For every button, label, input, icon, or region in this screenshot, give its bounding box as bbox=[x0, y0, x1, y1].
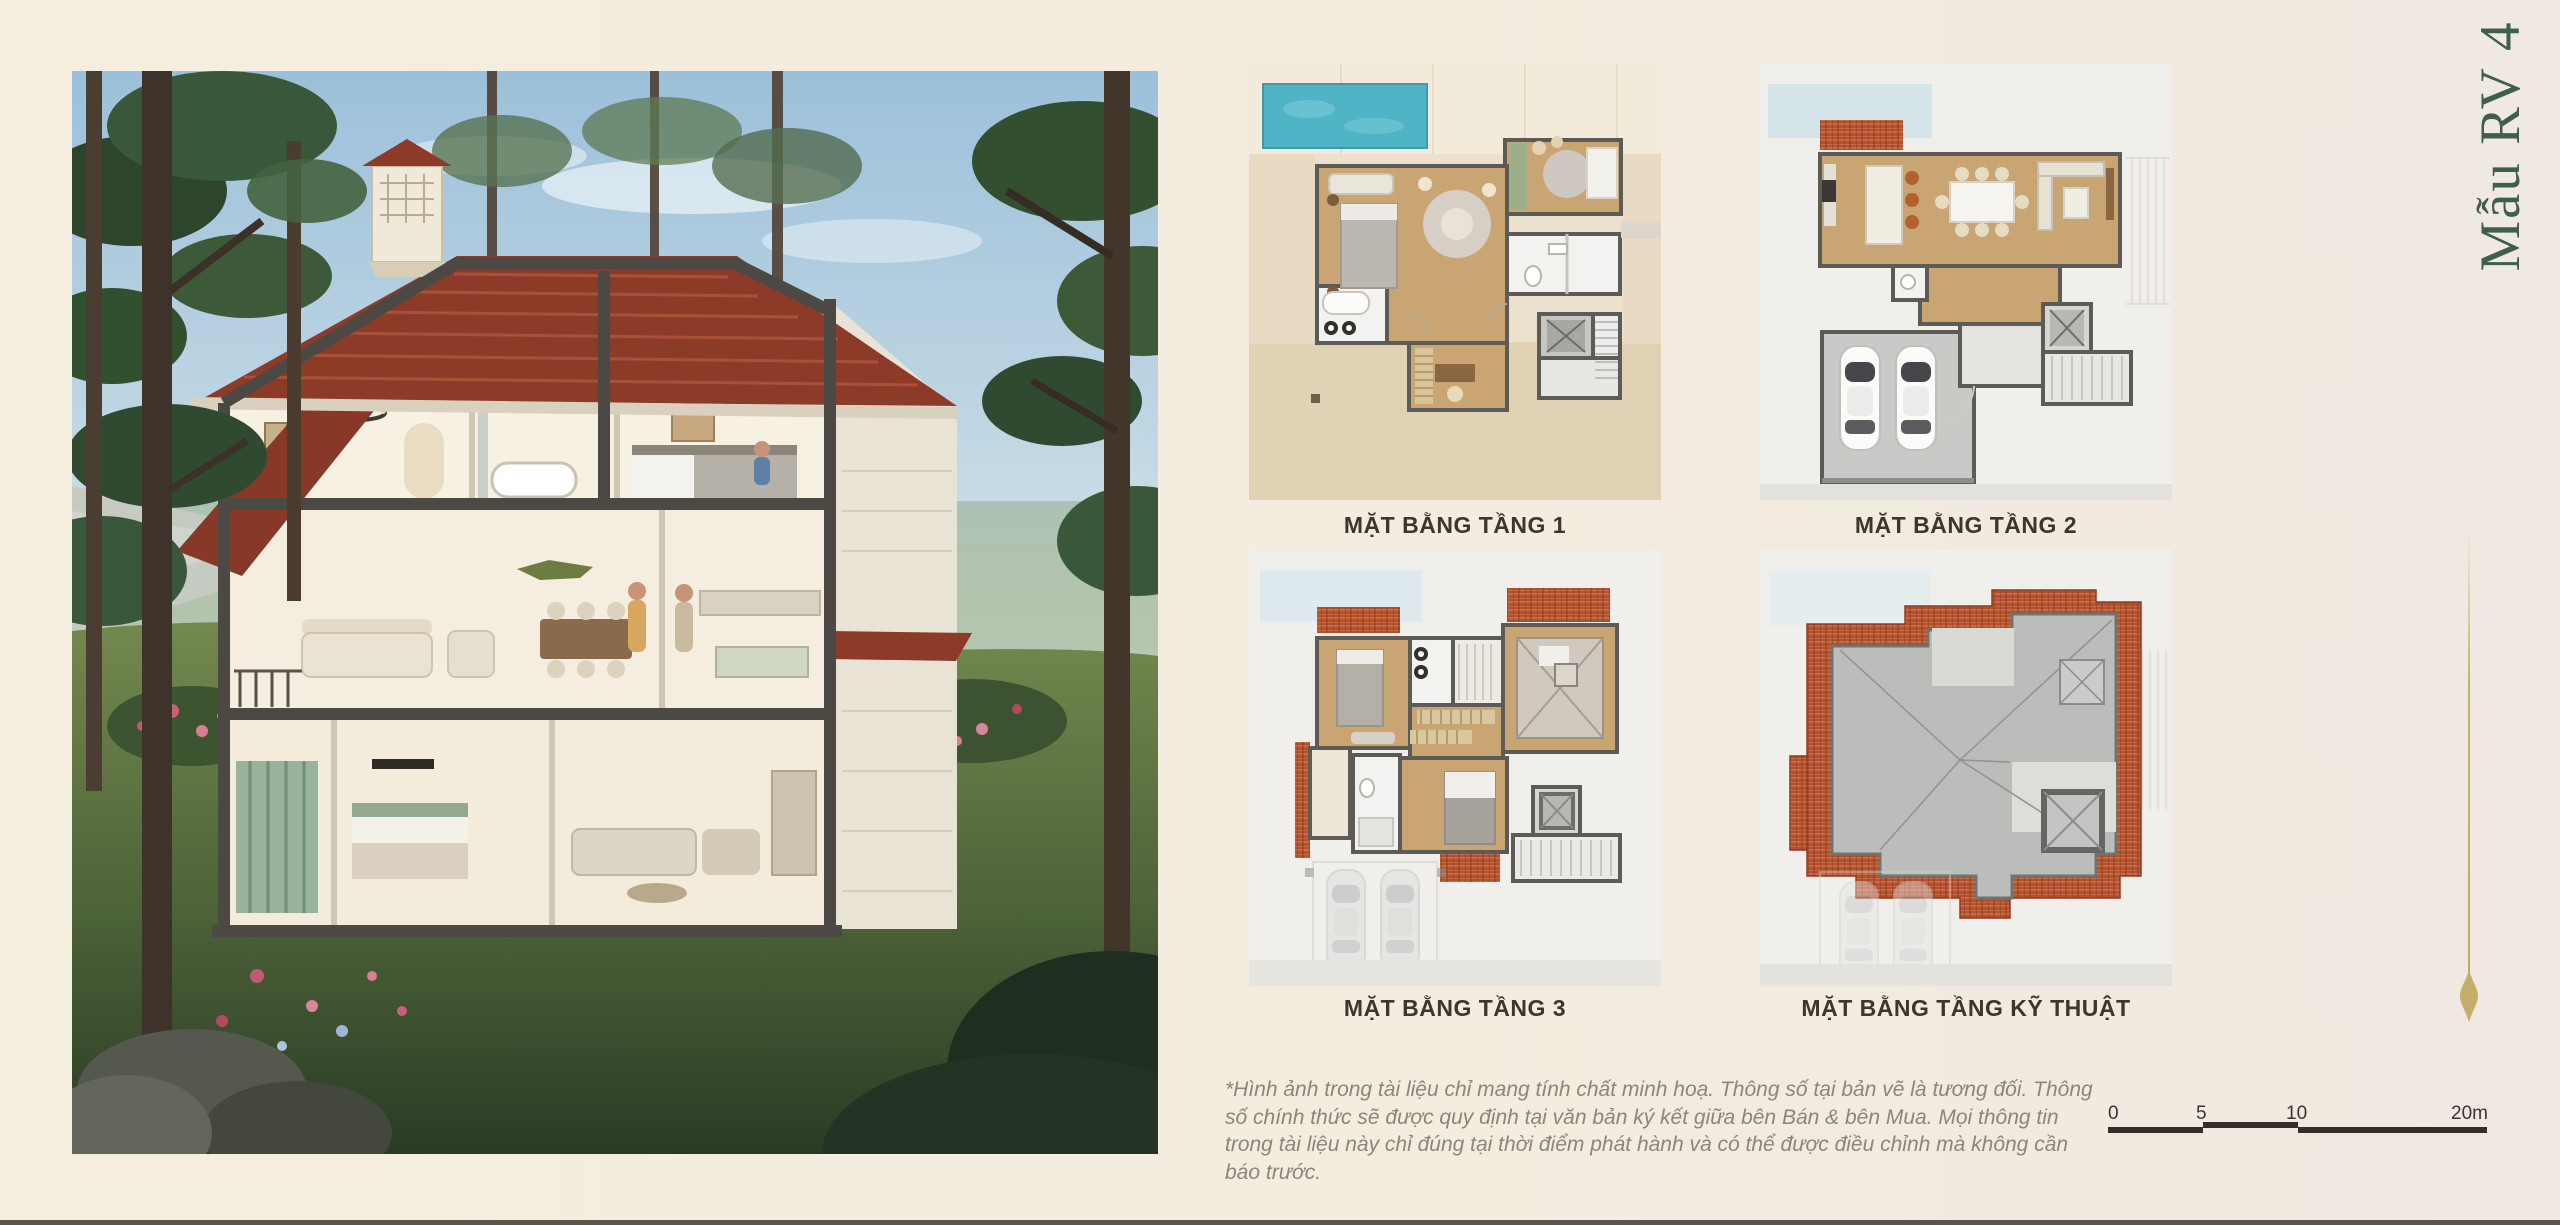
scale-bar-segment bbox=[2108, 1127, 2203, 1133]
plan-label-tang-ky-thuat: MẶT BẰNG TẦNG KỸ THUẬT bbox=[1760, 995, 2172, 1022]
sofa bbox=[2038, 162, 2104, 176]
scale-tick-20m: 20m bbox=[2451, 1103, 2488, 1125]
dining-table bbox=[540, 619, 632, 659]
chimney bbox=[362, 139, 452, 277]
scale-tick-0: 0 bbox=[2108, 1103, 2119, 1125]
plan-label-tang-1: MẶT BẰNG TẦNG 1 bbox=[1249, 512, 1661, 539]
page-title-vertical: Mẫu RV 4 bbox=[2469, 0, 2531, 296]
page-bottom-border bbox=[0, 1220, 2560, 1225]
garage-car-1 bbox=[1840, 346, 1880, 450]
sofa bbox=[302, 633, 432, 677]
villa-illustration bbox=[72, 71, 1158, 1154]
wardrobe-hatch bbox=[1417, 710, 1495, 724]
plan-label-tang-2: MẶT BẰNG TẦNG 2 bbox=[1760, 512, 2172, 539]
kitchen-island bbox=[716, 647, 808, 677]
dining-table bbox=[1950, 182, 2014, 222]
arched-niche bbox=[404, 423, 444, 499]
floor-plan-tang-ky-thuat bbox=[1760, 550, 2172, 986]
side-awning bbox=[830, 631, 972, 661]
scale-bar-segment bbox=[2203, 1122, 2298, 1128]
sofa bbox=[1329, 174, 1393, 194]
floor-plan-tang-2 bbox=[1760, 64, 2172, 500]
gold-diamond-ornament bbox=[2458, 970, 2480, 1022]
gold-divider-line bbox=[2468, 530, 2470, 973]
villa-cutaway-photo bbox=[72, 71, 1158, 1154]
plan-label-tang-3: MẶT BẰNG TẦNG 3 bbox=[1249, 995, 1661, 1022]
roof-tile-patch bbox=[1820, 120, 1903, 150]
disclaimer-note: *Hình ảnh trong tài liệu chỉ mang tính c… bbox=[1225, 1076, 2105, 1187]
bathtub bbox=[1323, 292, 1369, 314]
roof-tile-patch bbox=[1317, 607, 1400, 633]
pool bbox=[1263, 84, 1427, 148]
wardrobe bbox=[1509, 144, 1527, 210]
pergola-grid bbox=[2126, 158, 2170, 304]
floor-plan-tang-3 bbox=[1249, 550, 1661, 986]
scale-bar: 0 5 10 20m bbox=[2108, 1103, 2488, 1137]
garage-car-2 bbox=[1896, 346, 1936, 450]
scale-bar-segment bbox=[2298, 1127, 2487, 1133]
kitchen-island bbox=[1866, 166, 1902, 244]
stove bbox=[1822, 180, 1836, 202]
green-trellis bbox=[236, 761, 318, 913]
bathtub bbox=[492, 463, 576, 497]
floor-plan-tang-1 bbox=[1249, 64, 1661, 500]
